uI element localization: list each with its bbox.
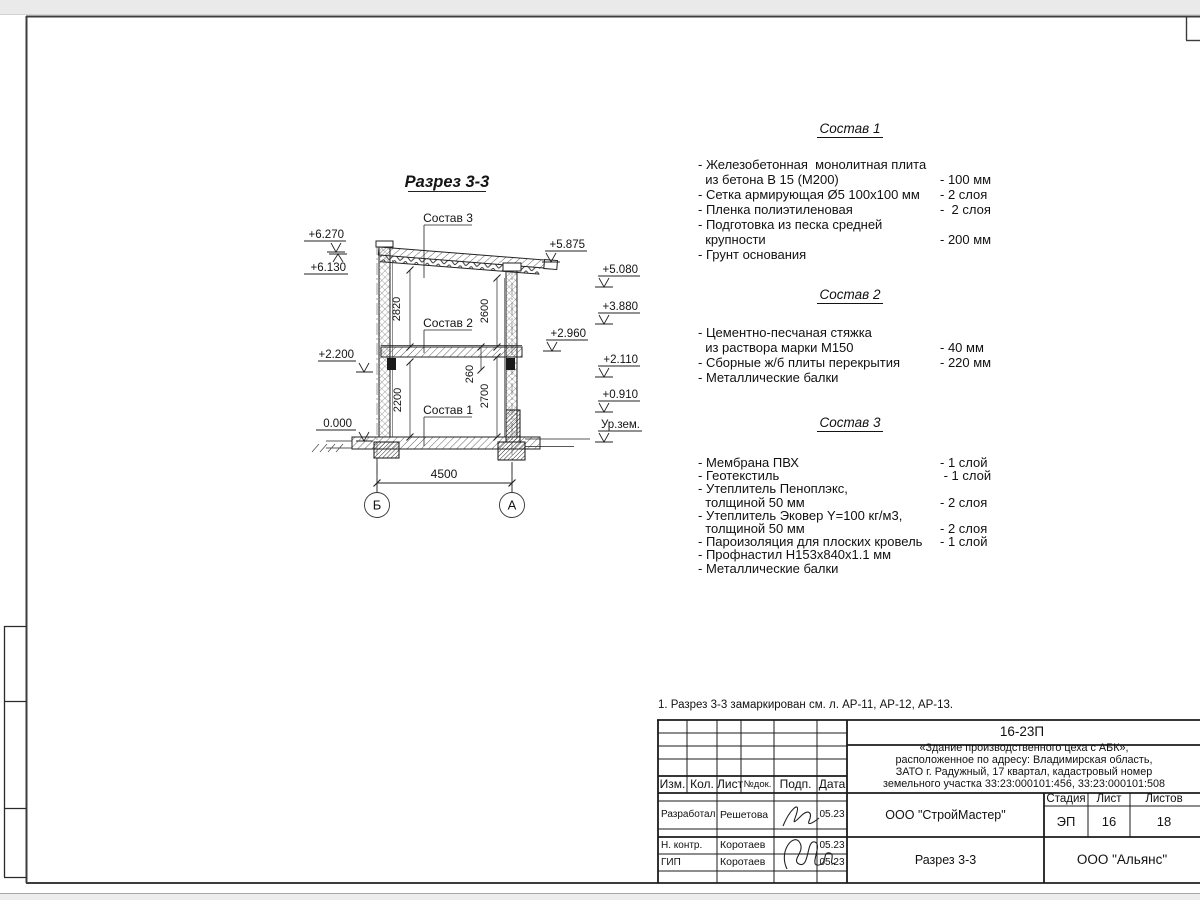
col-list: Лист bbox=[717, 776, 741, 793]
project-description: «Здание производственного цеха с АБК», р… bbox=[852, 742, 1196, 790]
sostav-2-title: Состав 2 bbox=[760, 287, 940, 302]
dim-2200: 2200 bbox=[392, 388, 404, 412]
axis-letter-b: Б bbox=[373, 498, 382, 513]
list-item: толщиной 50 мм- 2 слоя bbox=[698, 496, 998, 509]
titleblock-section-title: Разрез 3-3 bbox=[847, 837, 1044, 883]
col-izm: Изм. bbox=[658, 776, 687, 793]
elev-6130: +6.130 bbox=[311, 262, 347, 274]
list-item: - Профнастил Н153х840х1.1 мм bbox=[698, 548, 998, 561]
elev-0910: +0.910 bbox=[603, 389, 639, 401]
stage-value: ЭП bbox=[1044, 806, 1088, 837]
section-geometry bbox=[312, 241, 590, 492]
sheets-value: 18 bbox=[1130, 806, 1198, 837]
list-item: - Железобетонная монолитная плита bbox=[698, 157, 998, 172]
list-item: - Металлические балки bbox=[698, 562, 998, 575]
sostav-3-list: - Мембрана ПВХ- 1 слой - Геотекстиль - 1… bbox=[698, 456, 998, 575]
dim-260: 260 bbox=[464, 365, 476, 383]
elev-0000: 0.000 bbox=[323, 418, 352, 430]
list-item: - Утеплитель Пеноплэкс, bbox=[698, 482, 998, 495]
list-item: - Металлические балки bbox=[698, 370, 998, 385]
sheet-label: Лист bbox=[1088, 793, 1130, 806]
list-item: - Грунт основания bbox=[698, 247, 998, 262]
row-name: Коротаев bbox=[720, 837, 772, 854]
sostav-1-list: - Железобетонная монолитная плита из бет… bbox=[698, 157, 998, 262]
section-view-title: Разрез 3-3 bbox=[405, 173, 490, 191]
elev-5080: +5.080 bbox=[603, 264, 639, 276]
col-podp: Подп. bbox=[774, 776, 817, 793]
customer-org: ООО "Альянс" bbox=[1044, 837, 1200, 883]
stage-label: Стадия bbox=[1044, 793, 1088, 806]
doc-number: 16-23П bbox=[852, 721, 1192, 743]
dim-4500: 4500 bbox=[431, 467, 458, 481]
row-role: Разработал bbox=[661, 801, 716, 829]
axis-letter-a: А bbox=[508, 498, 517, 513]
dim-2820: 2820 bbox=[391, 297, 403, 321]
side-stamp bbox=[4, 626, 26, 878]
list-item: из бетона В 15 (М200)- 100 мм bbox=[698, 172, 998, 187]
list-item: - Подготовка из песка средней bbox=[698, 217, 998, 232]
dim-2600: 2600 bbox=[479, 299, 491, 323]
dim-2700: 2700 bbox=[479, 384, 491, 408]
sostav3-leader-label: Состав 3 bbox=[423, 211, 473, 225]
list-item: крупности- 200 мм bbox=[698, 232, 998, 247]
list-item: - Цементно-песчаная стяжка bbox=[698, 325, 998, 340]
row-date: 05.23 bbox=[817, 854, 847, 871]
sheets-label: Листов bbox=[1130, 793, 1198, 806]
row-name: Коротаев bbox=[720, 854, 772, 871]
row-date: 05.23 bbox=[817, 801, 847, 829]
sostav-1-title: Состав 1 bbox=[760, 121, 940, 136]
elev-3880: +3.880 bbox=[603, 301, 639, 313]
elev-2110: +2.110 bbox=[603, 354, 638, 366]
sostav-2-list: - Цементно-песчаная стяжка из раствора м… bbox=[698, 325, 998, 385]
elev-2200: +2.200 bbox=[319, 349, 355, 361]
col-ndok: №док. bbox=[741, 776, 774, 793]
row-role: Н. контр. bbox=[661, 837, 716, 854]
elevation-marks bbox=[304, 241, 642, 442]
elev-ground: Ур.зем. bbox=[601, 419, 640, 431]
signature-razrabotal bbox=[783, 807, 819, 826]
drawing-sheet: Разрез 3-3 Состав 3 Состав 2 Состав 1 28… bbox=[0, 0, 1200, 900]
elev-5875: +5.875 bbox=[550, 239, 586, 251]
contractor-org: ООО "СтройМастер" bbox=[847, 793, 1044, 837]
row-date: 05.23 bbox=[817, 837, 847, 854]
row-name: Решетова bbox=[720, 801, 772, 829]
row-role: ГИП bbox=[661, 854, 716, 871]
col-data: Дата bbox=[817, 776, 847, 793]
list-item: - Сборные ж/б плиты перекрытия- 220 мм bbox=[698, 355, 998, 370]
col-kol: Кол. bbox=[687, 776, 717, 793]
sostav2-leader-label: Состав 2 bbox=[423, 316, 473, 330]
list-item: - Утеплитель Эковер Y=100 кг/м3, bbox=[698, 509, 998, 522]
sheet-value: 16 bbox=[1088, 806, 1130, 837]
list-item: - Пленка полиэтиленовая- 2 слоя bbox=[698, 202, 998, 217]
list-item: - Сетка армирующая Ø5 100х100 мм- 2 слоя bbox=[698, 187, 998, 202]
sostav-3-title: Состав 3 bbox=[760, 415, 940, 430]
sostav1-leader-label: Состав 1 bbox=[423, 403, 473, 417]
sheet-note: 1. Разрез 3-3 замаркирован см. л. АР-11,… bbox=[658, 699, 953, 711]
elev-6270: +6.270 bbox=[309, 229, 345, 241]
list-item: из раствора марки М150- 40 мм bbox=[698, 340, 998, 355]
elev-2960: +2.960 bbox=[551, 328, 587, 340]
